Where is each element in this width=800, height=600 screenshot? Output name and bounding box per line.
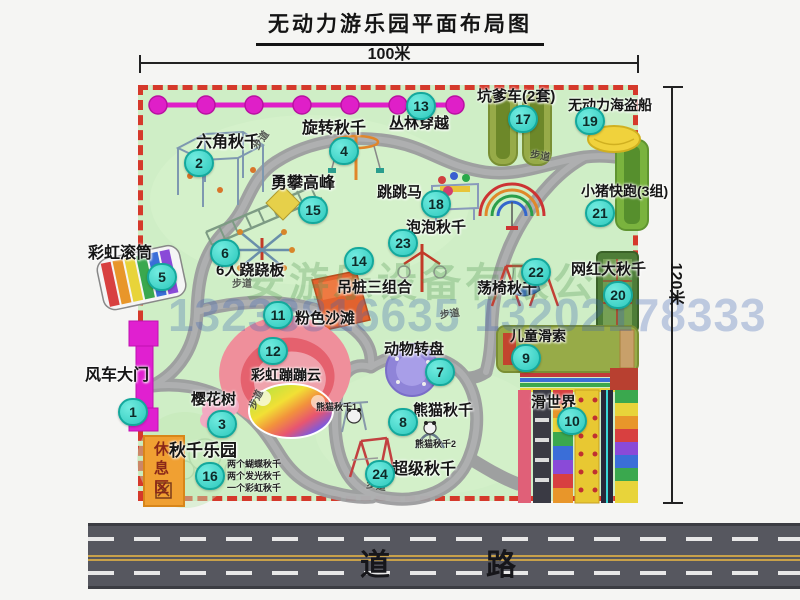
item-23-badge: 23 — [388, 229, 418, 257]
item-8-badge: 8 — [388, 408, 418, 436]
item-17-badge: 17 — [508, 105, 538, 133]
item-4-badge: 4 — [329, 137, 359, 165]
item-21-badge: 21 — [585, 199, 615, 227]
item-14-badge: 14 — [344, 247, 374, 275]
item-11-badge: 11 — [263, 301, 293, 329]
item-16-badge: 16 — [195, 462, 225, 490]
item-2-label: 六角秋千 — [196, 135, 260, 151]
trail-label-4: 步道 — [248, 389, 266, 411]
item-12-badge: 12 — [258, 337, 288, 365]
trail-label-1: 步道 — [529, 150, 550, 163]
item-12-label: 彩虹蹦蹦云 — [251, 368, 321, 382]
item-9-badge: 9 — [511, 344, 541, 372]
item-5-label: 彩虹滚筒 — [88, 246, 152, 262]
item-13-badge: 13 — [406, 92, 436, 120]
trail-label-2: 步道 — [232, 280, 252, 290]
item-24-label: 超级秋千 — [392, 462, 456, 478]
dimension-width-line — [140, 62, 638, 64]
item-7-label: 动物转盘 — [384, 342, 444, 357]
item-17-label: 坑爹车(2套) — [477, 89, 555, 104]
item-20-badge: 20 — [603, 281, 633, 309]
item-11-label: 粉色沙滩 — [295, 311, 355, 326]
item-14-label: 吊桩三组合 — [337, 280, 412, 295]
item-18-label: 跳跳马 — [377, 185, 422, 200]
item-6-badge: 6 — [210, 239, 240, 267]
item-19-badge: 19 — [575, 107, 605, 135]
note-0: 熊猫秋千1 — [316, 403, 357, 412]
item-15-label: 勇攀高峰 — [271, 176, 335, 192]
note-2: 两个蝴蝶秋千 — [227, 460, 281, 469]
item-21-label: 小猪快跑(3组) — [581, 184, 668, 198]
dimension-width-label: 100米 — [140, 40, 638, 64]
item-24-badge: 24 — [365, 460, 395, 488]
note-3: 两个发光秋千 — [227, 472, 281, 481]
item-3-label: 樱花树 — [191, 392, 236, 407]
item-1-badge: 1 — [118, 398, 148, 426]
item-16-label: 秋千乐园 — [169, 442, 237, 459]
item-10-badge: 10 — [557, 407, 587, 435]
item-18-badge: 18 — [421, 190, 451, 218]
note-1: 熊猫秋千2 — [415, 440, 456, 449]
dimension-height-label: 120米 — [666, 254, 690, 314]
item-7-badge: 7 — [425, 358, 455, 386]
item-15-badge: 15 — [298, 196, 328, 224]
item-2-badge: 2 — [184, 149, 214, 177]
park-plan-canvas: 无动力游乐园平面布局图 100米 120米 — [0, 0, 800, 600]
item-9-label: 儿童滑索 — [510, 329, 566, 343]
item-20-label: 网红大秋千 — [571, 262, 646, 277]
note-4: 一个彩虹秋千 — [227, 484, 281, 493]
item-3-badge: 3 — [207, 410, 237, 438]
item-5-badge: 5 — [147, 263, 177, 291]
item-8-label: 熊猫秋千 — [413, 403, 473, 418]
item-22-badge: 22 — [521, 258, 551, 286]
item-23-label: 泡泡秋千 — [406, 220, 466, 235]
trail-label-3: 步道 — [439, 309, 460, 322]
item-1-label: 风车大门 — [85, 368, 149, 384]
item-4-label: 旋转秋千 — [302, 121, 366, 137]
